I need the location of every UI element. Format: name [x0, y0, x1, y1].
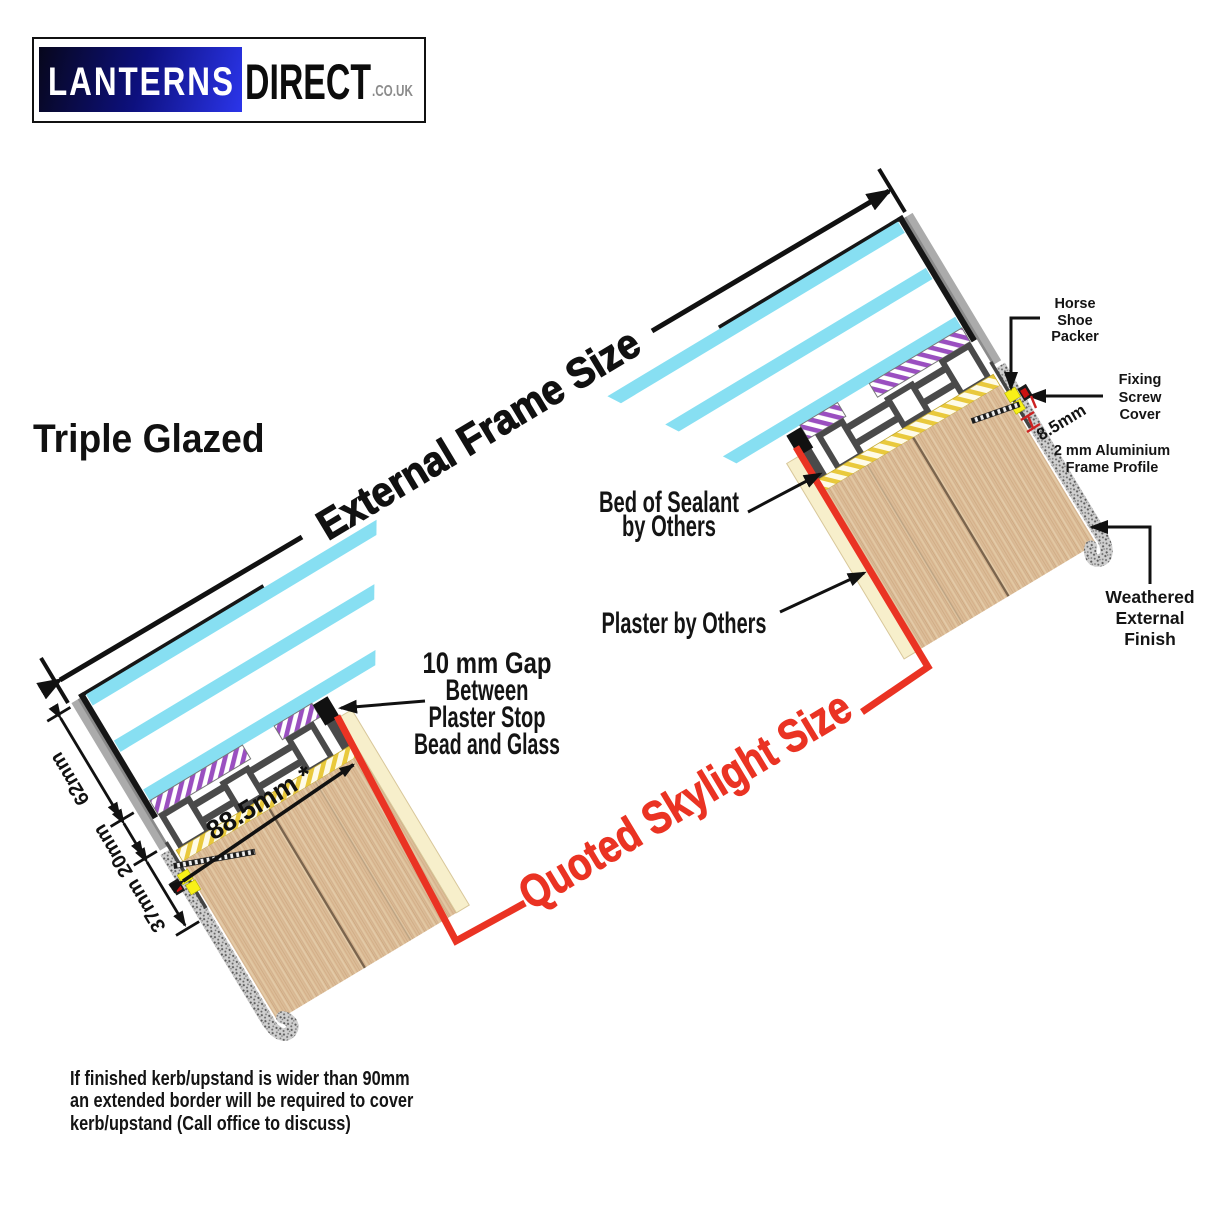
svg-text:Fixing: Fixing — [1119, 372, 1162, 388]
svg-text:Quoted Skylight Size: Quoted Skylight Size — [509, 680, 860, 919]
svg-text:Bead and Glass: Bead and Glass — [414, 728, 560, 761]
svg-text:Screw: Screw — [1119, 390, 1162, 406]
svg-text:Frame Profile: Frame Profile — [1066, 460, 1159, 476]
svg-text:Finish: Finish — [1124, 629, 1176, 649]
svg-text:by Others: by Others — [622, 510, 716, 543]
svg-text:Shoe: Shoe — [1057, 313, 1092, 329]
svg-text:Packer: Packer — [1051, 329, 1099, 345]
svg-text:Weathered: Weathered — [1105, 587, 1194, 607]
svg-text:Cover: Cover — [1119, 407, 1160, 423]
svg-text:External: External — [1115, 608, 1184, 628]
svg-text:8.5mm: 8.5mm — [1033, 400, 1089, 444]
svg-text:20mm: 20mm — [89, 820, 138, 881]
svg-text:37mm: 37mm — [122, 875, 171, 936]
svg-text:2 mm Aluminium: 2 mm Aluminium — [1054, 443, 1170, 459]
svg-text:Plaster by Others: Plaster by Others — [602, 607, 767, 640]
svg-text:62mm: 62mm — [46, 748, 95, 809]
svg-text:External Frame Size: External Frame Size — [308, 319, 648, 549]
svg-text:Horse: Horse — [1054, 296, 1095, 312]
